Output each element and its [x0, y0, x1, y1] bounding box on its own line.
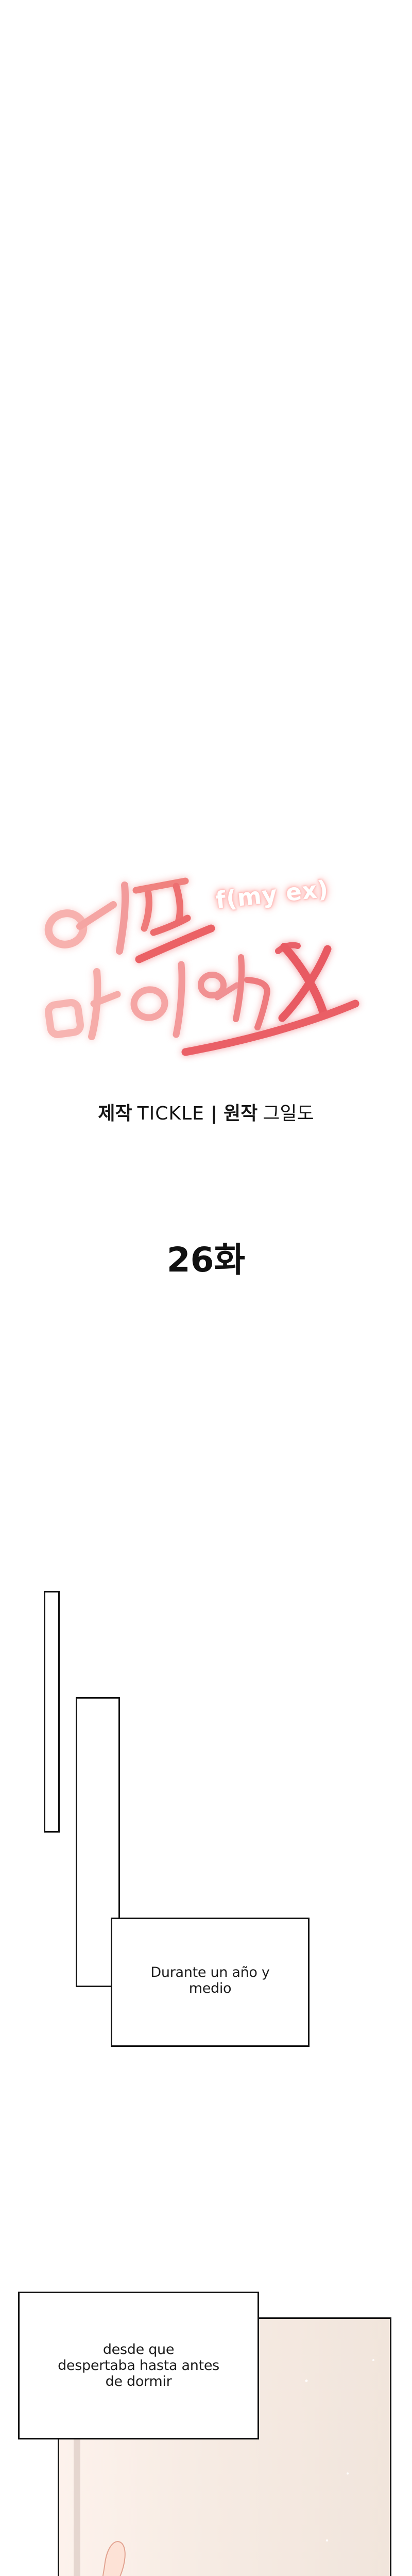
credits-original-by: 그일도 [263, 1103, 314, 1125]
credits-produced-by: TICKLE [138, 1103, 204, 1125]
panel-strip-narrow [44, 1591, 60, 1833]
credits-original-label: 원작 [224, 1103, 257, 1125]
narration-2-line-1: desde que [20, 2342, 257, 2358]
credits-line: 제작 TICKLE | 원작 그일도 [0, 1103, 412, 1125]
webtoon-page: f(my ex) 제작 TICKLE | 원작 그일도 26화 Durante … [0, 0, 412, 2576]
narration-box-1: Durante un año y medio [111, 1918, 310, 2047]
credits-separator: | [211, 1103, 217, 1125]
narration-2-line-2: despertaba hasta antes [20, 2358, 257, 2374]
narration-2-line-3: de dormir [20, 2374, 257, 2389]
narration-1-line-2: medio [112, 1980, 308, 1996]
episode-title: 26화 [0, 1232, 412, 1282]
credits-produced-label: 제작 [98, 1103, 132, 1125]
narration-1-line-1: Durante un año y [112, 1964, 308, 1980]
narration-box-2: desde que despertaba hasta antes de dorm… [18, 2292, 259, 2439]
